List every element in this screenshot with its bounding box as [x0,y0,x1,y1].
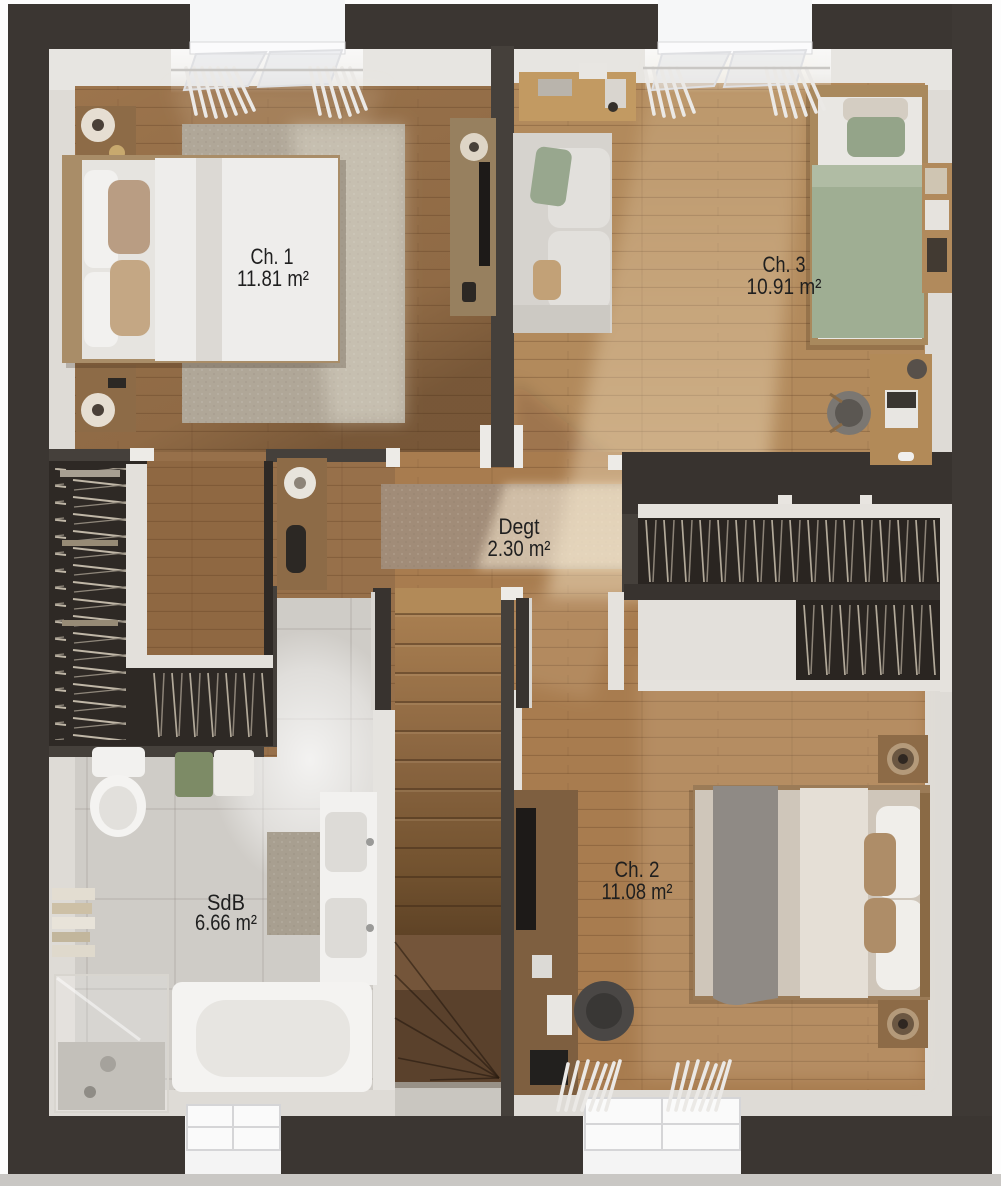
svg-text:2.30 m²: 2.30 m² [488,536,551,561]
svg-text:11.08 m²: 11.08 m² [602,879,673,904]
svg-text:6.66 m²: 6.66 m² [195,910,257,935]
svg-text:11.81 m²: 11.81 m² [237,266,309,291]
svg-text:10.91 m²: 10.91 m² [747,274,822,299]
